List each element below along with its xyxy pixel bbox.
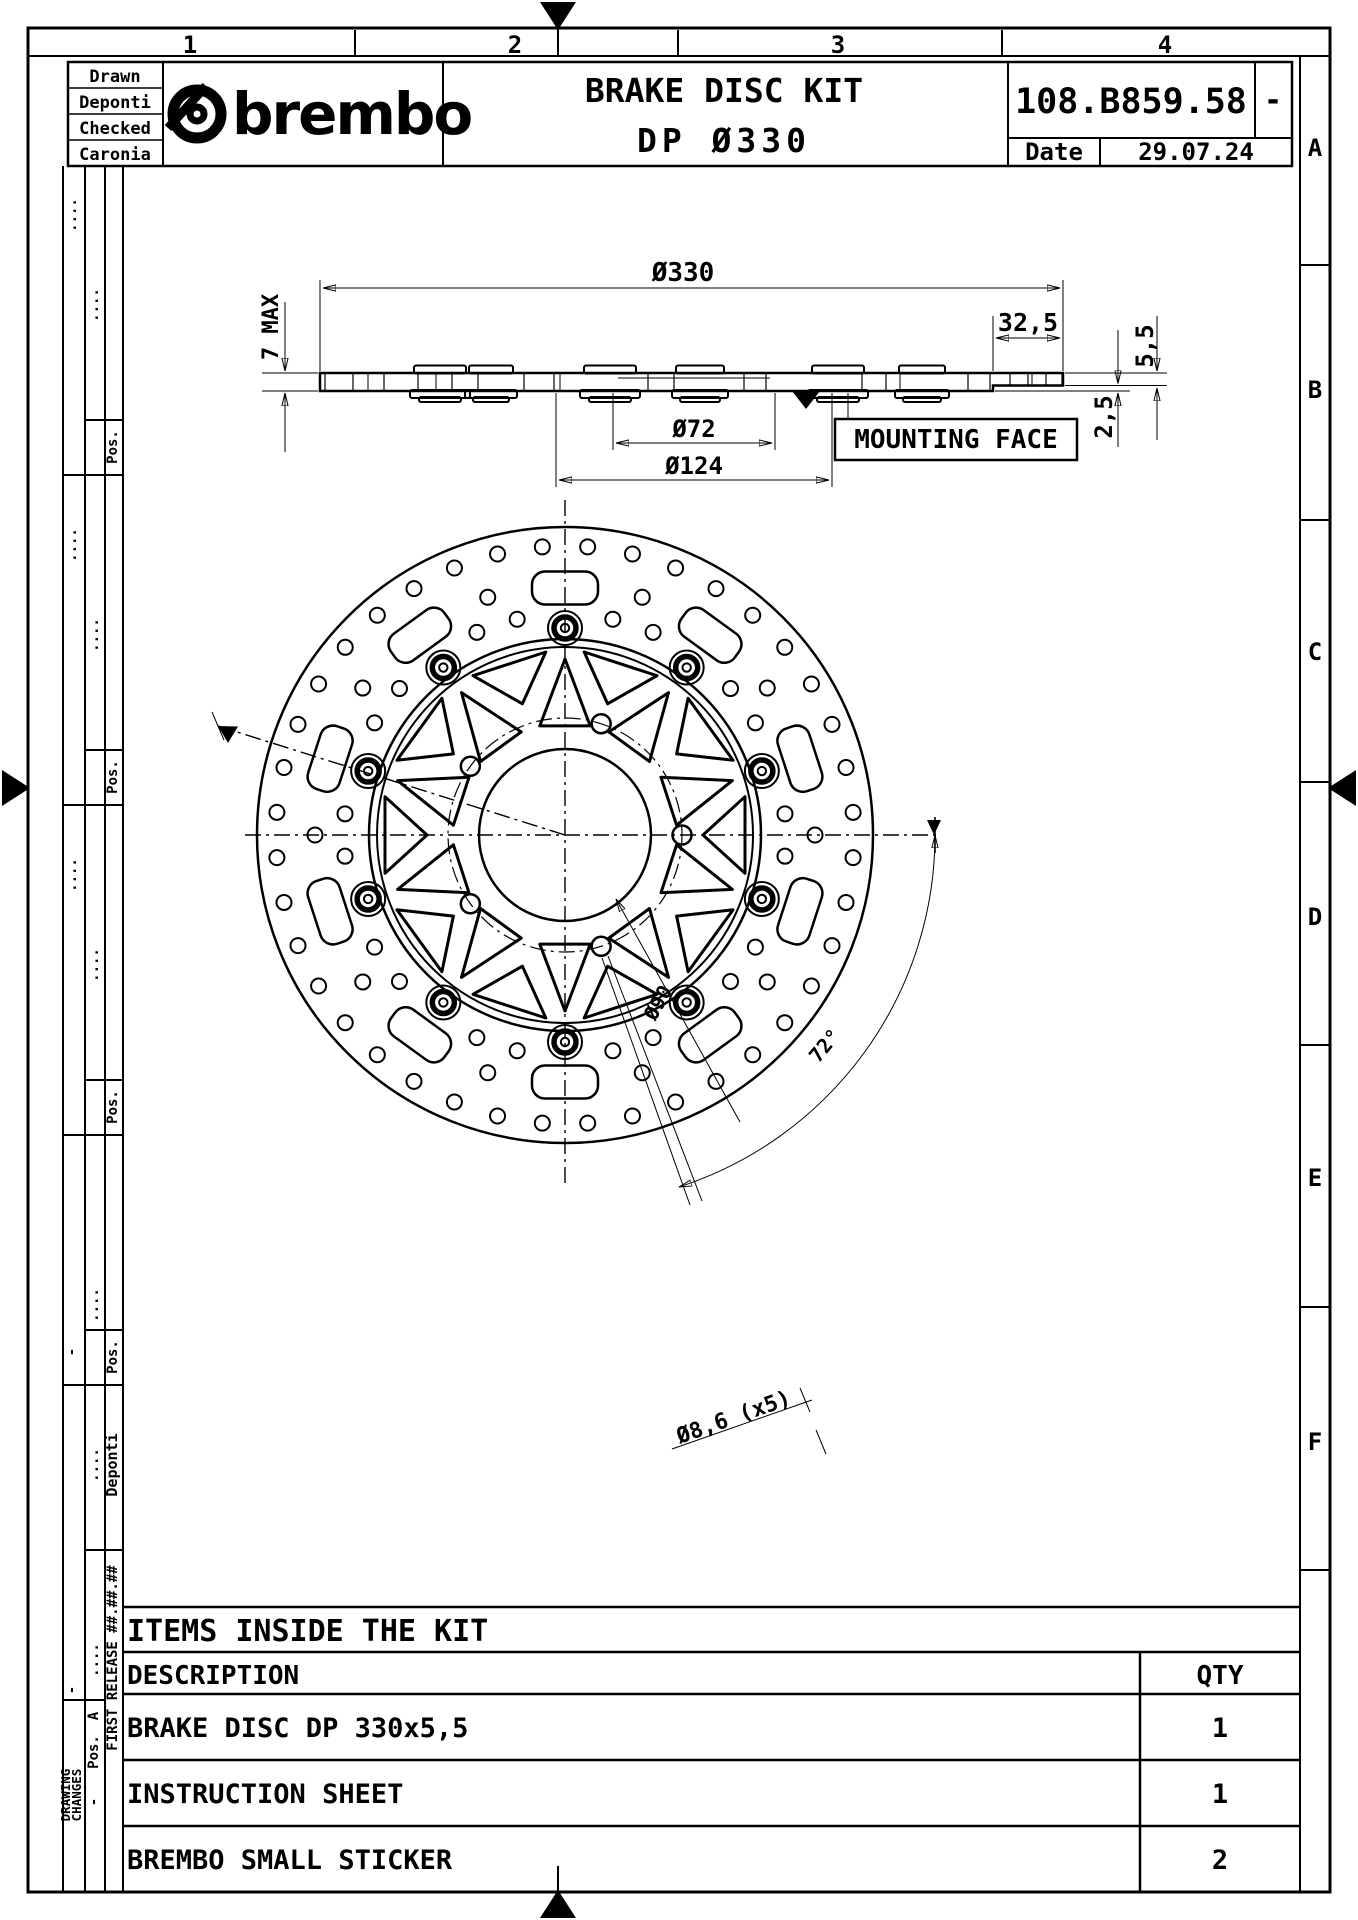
revision-margin: Pos. Pos. Pos. Pos. .... .... .... .... …	[58, 166, 123, 1892]
checked-label: Checked	[79, 119, 151, 139]
dim-band-width: 32,5	[993, 308, 1060, 371]
revision-margin-text: Pos. Pos. Pos. Pos. .... .... .... .... …	[58, 198, 121, 1821]
svg-text:....: ....	[86, 948, 102, 982]
svg-text:....: ....	[86, 1448, 102, 1482]
brembo-logo: brembo	[168, 80, 471, 148]
drawn-by: Deponti	[79, 93, 151, 113]
svg-text:7 MAX: 7 MAX	[259, 294, 284, 360]
side-view: Ø330 32,5 7 MAX 5,5 2,5	[259, 258, 1167, 487]
svg-text:....: ....	[86, 618, 102, 652]
kit-table-row: BRAKE DISC DP 330x5,5 1	[127, 1713, 1228, 1744]
kit-row-qty: 1	[1212, 1779, 1228, 1810]
svg-text:....: ....	[86, 1288, 102, 1322]
svg-text:Pos.: Pos.	[105, 1090, 121, 1124]
title-block: Drawn Deponti Checked Caronia brembo BRA…	[68, 62, 1292, 166]
drawing-changes-label-2: CHANGES	[69, 1769, 84, 1822]
kit-col-description: DESCRIPTION	[127, 1661, 299, 1691]
svg-text:-: -	[64, 1686, 80, 1694]
svg-text:....: ....	[64, 198, 80, 232]
kit-row-qty: 2	[1212, 1845, 1228, 1876]
mounting-face-pointer	[792, 391, 820, 409]
part-number: 108.B859.58	[1015, 82, 1247, 122]
svg-text:72°: 72°	[804, 1024, 846, 1067]
kit-col-qty: QTY	[1197, 1661, 1244, 1691]
svg-text:....: ....	[86, 288, 102, 322]
row-label-f: F	[1308, 1428, 1322, 1456]
svg-text:Ø8,6 (x5): Ø8,6 (x5)	[673, 1386, 795, 1450]
svg-text:2,5: 2,5	[1090, 395, 1118, 438]
drawing-title-line2: DP Ø330	[637, 121, 811, 160]
kit-row-description: BREMBO SMALL STICKER	[127, 1845, 453, 1876]
date-label: Date	[1025, 138, 1083, 166]
svg-text:5,5: 5,5	[1131, 324, 1159, 367]
mounting-face-callout: MOUNTING FACE	[835, 393, 1077, 460]
svg-text:Pos.: Pos.	[105, 760, 121, 794]
column-label-1: 1	[183, 31, 197, 59]
column-label-2: 2	[508, 31, 522, 59]
svg-text:Ø124: Ø124	[664, 452, 723, 480]
sheet-frame	[28, 28, 1330, 1892]
revision-signature: Deponti	[103, 1433, 121, 1496]
column-label-4: 4	[1158, 31, 1172, 59]
dim-fixing-holes: Ø8,6 (x5)	[672, 1386, 826, 1454]
date-value: 29.07.24	[1138, 138, 1254, 166]
row-label-e: E	[1308, 1164, 1322, 1192]
row-label-d: D	[1308, 903, 1322, 931]
section-hatch	[325, 373, 1062, 391]
section-bobbins	[410, 366, 949, 403]
checked-by: Caronia	[79, 145, 151, 165]
drawing-sheet: 1 2 3 4 A B C D E F Drawn Deponti Checke…	[0, 0, 1358, 1920]
svg-text:Pos.: Pos.	[86, 1735, 102, 1769]
revision-code: -	[1264, 83, 1282, 118]
drawn-label: Drawn	[89, 67, 140, 87]
kit-table-row: BREMBO SMALL STICKER 2	[127, 1845, 1228, 1876]
svg-text:Pos.: Pos.	[105, 1340, 121, 1374]
row-label-a: A	[1308, 134, 1323, 162]
svg-text:....: ....	[64, 858, 80, 892]
front-view: 72° Ø8,6 (x5) Ø90	[212, 500, 941, 1454]
kit-row-description: BRAKE DISC DP 330x5,5	[127, 1713, 468, 1744]
kit-row-qty: 1	[1212, 1713, 1228, 1744]
kit-row-description: INSTRUCTION SHEET	[127, 1779, 403, 1810]
revision-letter: A	[86, 1711, 102, 1720]
row-label-c: C	[1308, 638, 1322, 666]
kit-table: ITEMS INSIDE THE KIT DESCRIPTION QTY BRA…	[123, 1607, 1300, 1892]
svg-text:....: ....	[86, 1643, 102, 1677]
svg-text:....: ....	[64, 528, 80, 562]
column-label-3: 3	[831, 31, 845, 59]
centerlines	[212, 500, 941, 1183]
svg-text:-: -	[64, 1348, 80, 1356]
first-release-note: FIRST RELEASE ##.##.##	[105, 1565, 121, 1751]
brembo-wordmark: brembo	[232, 80, 471, 148]
mounting-face-label: MOUNTING FACE	[854, 425, 1058, 455]
svg-text:Pos.: Pos.	[105, 430, 121, 464]
dim-max-thickness: 7 MAX	[259, 294, 318, 452]
row-ruler: A B C D E F	[1308, 134, 1323, 1456]
dim-outer-diameter: Ø330	[320, 258, 1063, 371]
svg-text:-: -	[86, 1798, 102, 1806]
kit-table-row: INSTRUCTION SHEET 1	[127, 1779, 1228, 1810]
svg-text:32,5: 32,5	[998, 308, 1058, 337]
svg-text:Ø72: Ø72	[671, 415, 715, 443]
kit-table-header: ITEMS INSIDE THE KIT	[127, 1614, 488, 1649]
row-label-b: B	[1308, 376, 1322, 404]
svg-text:Ø330: Ø330	[651, 258, 715, 288]
drawing-title-line1: BRAKE DISC KIT	[585, 71, 863, 110]
